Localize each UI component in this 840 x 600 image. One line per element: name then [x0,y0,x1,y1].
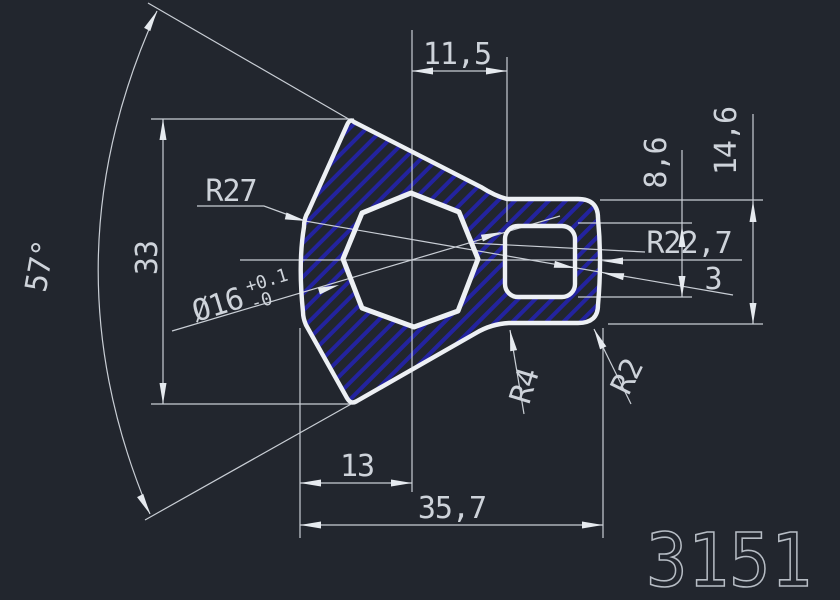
dim-left-radius: R27 [205,174,256,209]
arrowhead [750,201,757,222]
arrowheads [137,9,756,528]
dim-lobe-height: 14,6 [709,107,744,175]
dimension-line-group [98,3,763,538]
arrowhead [554,261,576,272]
arrowhead [160,383,167,404]
part-number: 3151 [646,518,812,600]
arrowhead [137,494,153,516]
dim-right-radius: R22,7 [646,226,731,261]
angle-extension-top [148,3,352,121]
arrowhead [507,329,518,351]
dim-overall-width: 35,7 [418,491,486,526]
dim-height: 33 [130,241,165,275]
dim-corner-radius: R2 [604,354,650,400]
cad-drawing: 11,5 57° 33 R27 Ø16 +0.1 -0 8,6 14,6 R22… [0,0,840,600]
dim-wall-thickness: 3 [704,262,721,297]
arrowhead [144,9,160,31]
arrowhead [591,327,606,349]
arrowhead [750,303,757,324]
dim-slot-height: 8,6 [639,137,674,188]
dim-angle: 57° [19,238,62,294]
arrowhead [300,522,321,529]
arrowhead [160,119,167,140]
arrowhead [602,270,624,281]
dim-bore-diameter: Ø16 [188,281,247,329]
arrowhead [582,522,603,529]
angle-extension-bottom [145,403,353,520]
dim-bore: Ø16 +0.1 -0 [188,265,296,332]
arrowhead [391,480,412,487]
cad-canvas: 11,5 57° 33 R27 Ø16 +0.1 -0 8,6 14,6 R22… [0,0,840,600]
dim-top-width: 11,5 [423,37,491,72]
arrowhead [602,258,623,265]
arrowhead [300,480,321,487]
dim-neck-fillet: R4 [503,365,546,408]
dim-center-to-left: 13 [340,449,374,484]
